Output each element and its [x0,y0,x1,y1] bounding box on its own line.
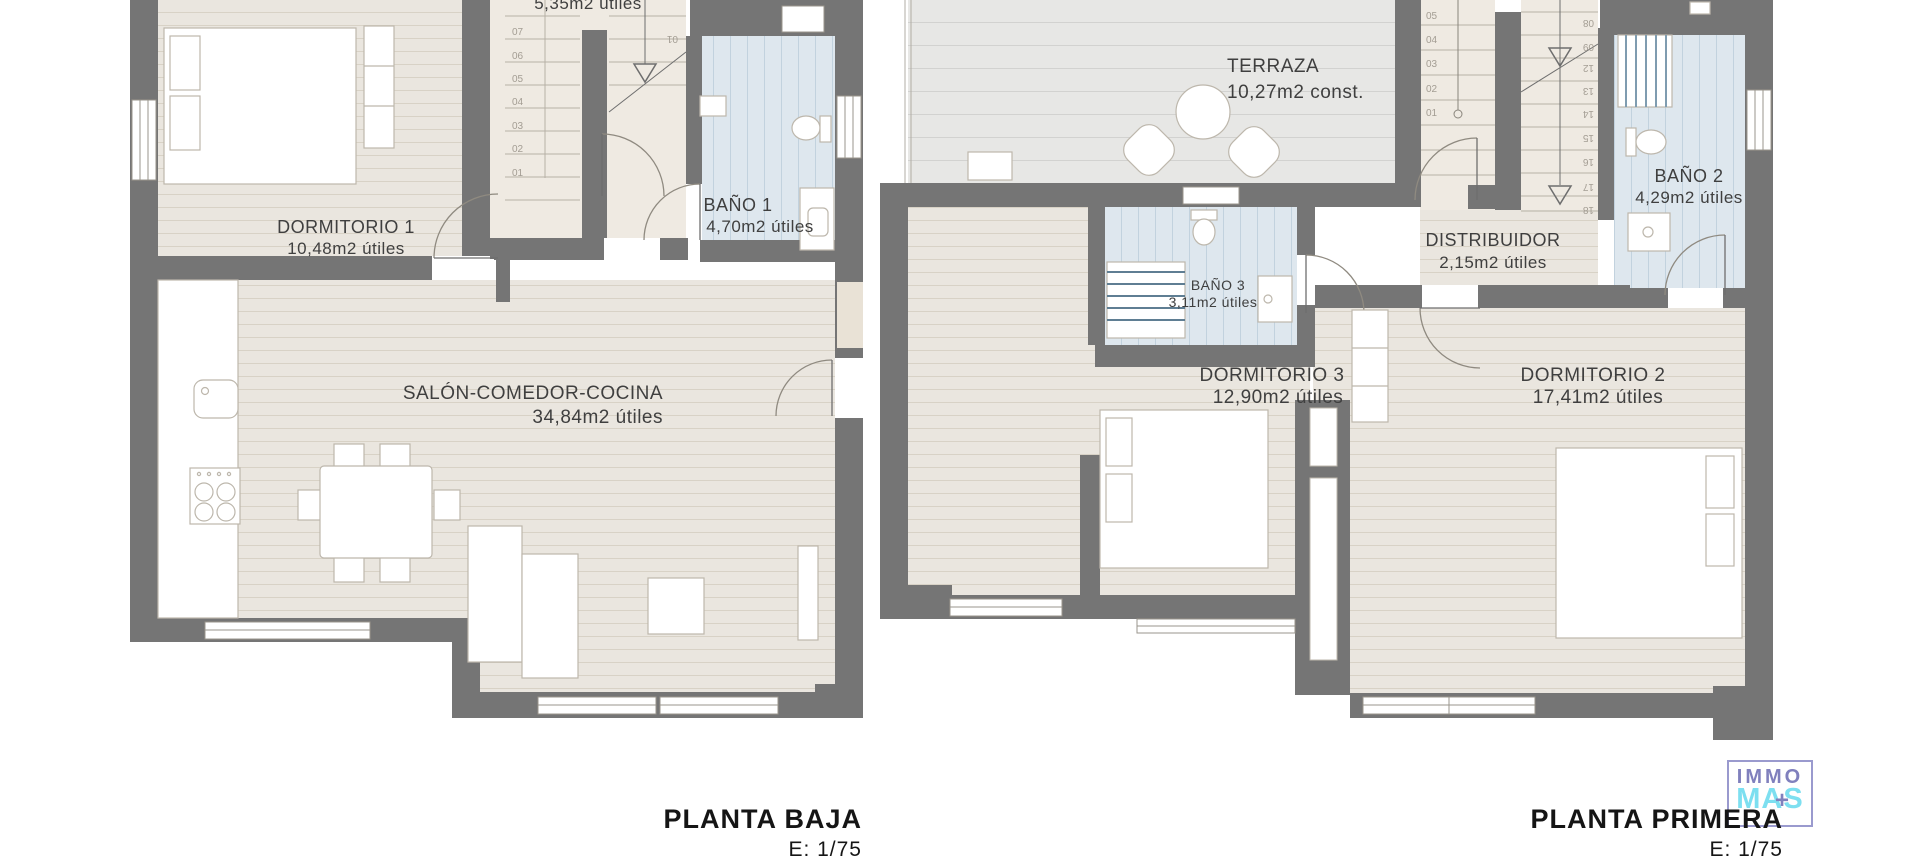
toilet-tank [820,116,831,142]
step-number-mirrored: 18 [1582,204,1594,215]
planta-primera-title-block: PLANTA PRIMERA E: 1/75 [1531,804,1784,860]
label-partial-area: 5,35m2 útiles [534,0,642,13]
bathroom-shelf-bano2 [1690,2,1710,14]
toilet-bano2 [1636,130,1666,154]
label-distribuidor-area: 2,15m2 útiles [1439,253,1547,272]
bathroom-shelf [700,96,726,116]
planta-primera-scale: E: 1/75 [1531,838,1784,860]
label-bano3-name: BAÑO 3 [1191,277,1245,293]
step-number-mirrored: 12 [1582,62,1594,73]
step-number: 07 [512,27,524,38]
step-number: 01 [512,168,524,179]
dining-chair [334,556,364,582]
step-number-mirrored: 16 [1582,156,1594,167]
kitchen-counter [158,280,238,618]
toilet-bano1 [792,116,820,140]
planta-baja-title: PLANTA BAJA [664,804,863,835]
sofa-chaise [468,526,522,662]
dining-chair [434,490,460,520]
label-bano1-area: 4,70m2 útiles [706,217,814,236]
terrace-planter [968,152,1012,180]
label-terraza-area: 10,27m2 const. [1227,82,1364,103]
label-dormitorio1-area: 10,48m2 útiles [287,239,405,258]
planta-primera-title: PLANTA PRIMERA [1531,804,1784,835]
step-number: 03 [512,121,524,132]
step-number-mirrored: 15 [1582,132,1594,143]
terrace-table [1176,85,1230,139]
label-bano1-name: BAÑO 1 [703,194,772,215]
label-bano3-area: 3,11m2 útiles [1169,294,1258,310]
sink-bano3 [1258,276,1292,322]
planta-baja-plan: 01 02 03 04 05 06 07 01 [130,0,863,718]
step-number: 05 [1426,11,1438,22]
label-dormitorio2-name: DORMITORIO 2 [1521,365,1666,386]
floorplan-sheet: 01 02 03 04 05 06 07 01 [0,0,1920,860]
closet-niche [1310,478,1337,660]
label-dormitorio1-name: DORMITORIO 1 [277,217,415,237]
kitchen-sink [194,380,238,418]
toilet-bano3 [1193,219,1215,245]
sink-bano2 [1628,213,1670,251]
planta-baja-title-block: PLANTA BAJA E: 1/75 [664,804,863,860]
label-bano2-area: 4,29m2 útiles [1635,188,1743,207]
label-salon-name: SALÓN-COMEDOR-COCINA [403,382,663,404]
door-opening [835,358,863,418]
label-terraza-name: TERRAZA [1227,56,1319,77]
dining-table [320,466,432,558]
tv-unit [798,546,818,640]
dining-chair [380,556,410,582]
step-number: 03 [1426,59,1438,70]
step-number: 05 [512,74,524,85]
label-dormitorio3-name: DORMITORIO 3 [1200,365,1345,386]
step-number-mirrored: 09 [1582,41,1594,52]
label-bano2-name: BAÑO 2 [1654,165,1723,186]
planta-baja-scale: E: 1/75 [664,838,863,860]
step-number-mirrored: 08 [1582,17,1594,28]
wardrobe-dormitorio2 [1352,310,1388,422]
wardrobe-dormitorio1 [364,26,394,148]
label-dormitorio3-area: 12,90m2 útiles [1213,387,1344,408]
label-dormitorio2-area: 17,41m2 útiles [1533,387,1664,408]
sofa [522,554,578,678]
upper-step-number: 01 [666,33,678,44]
step-number: 02 [1426,84,1438,95]
label-salon-area: 34,84m2 útiles [532,407,663,428]
closet-niche-upper [1310,408,1337,466]
step-number: 04 [1426,35,1438,46]
step-number-mirrored: 13 [1582,85,1594,96]
step-number: 01 [1426,108,1438,119]
label-distribuidor-name: DISTRIBUIDOR [1425,230,1560,250]
stove [190,468,240,524]
toilet-tank-bano2 [1626,128,1636,156]
planta-primera-plan: 01 02 03 04 05 08 09 12 13 14 15 16 17 1… [880,0,1773,740]
dormitorio3-floor-upper [908,207,1088,345]
step-number-mirrored: 14 [1582,108,1594,119]
terrace-slider [837,282,863,348]
step-number: 02 [512,144,524,155]
step-number-mirrored: 17 [1582,181,1594,192]
step-number: 04 [512,97,524,108]
floorplans-drawing: 01 02 03 04 05 06 07 01 [0,0,1920,860]
step-number: 06 [512,51,524,62]
coffee-table [648,578,704,634]
